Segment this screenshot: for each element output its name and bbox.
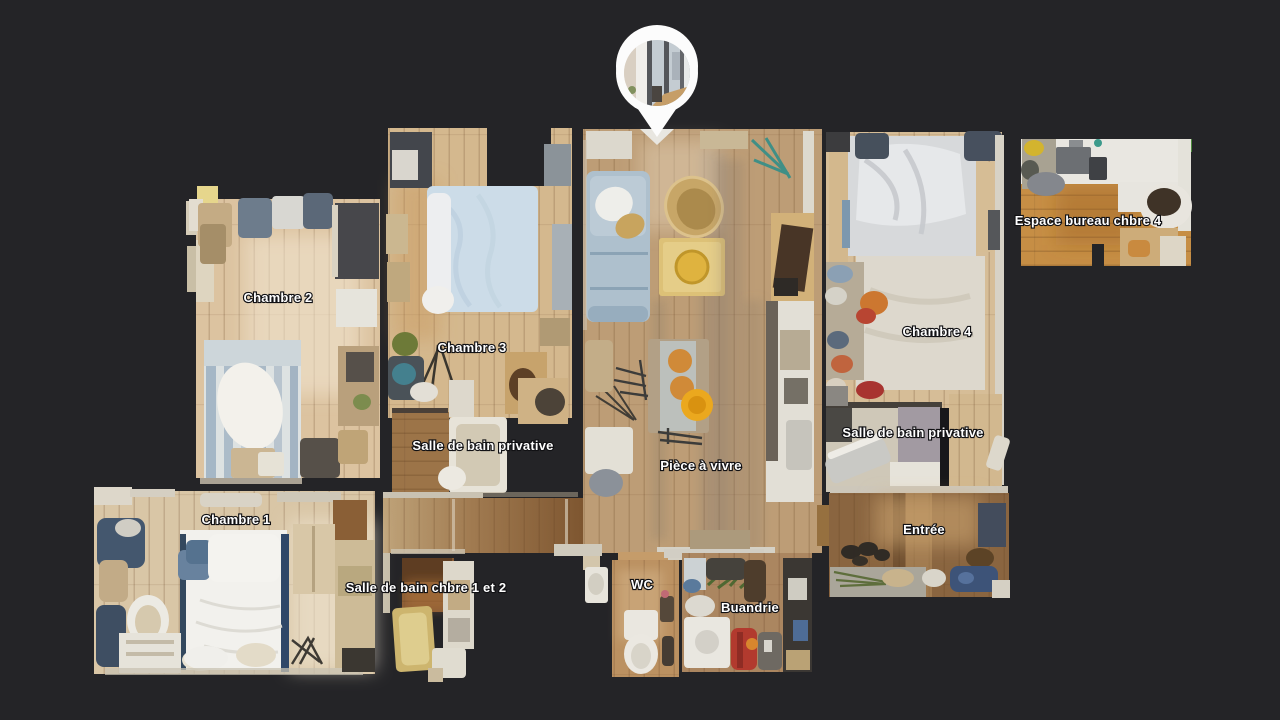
svg-text:Buandrie: Buandrie — [721, 600, 779, 615]
svg-text:Pièce à vivre: Pièce à vivre — [660, 458, 741, 473]
svg-text:Espace bureau chbre 4: Espace bureau chbre 4 — [1015, 213, 1162, 228]
svg-text:WC: WC — [631, 577, 653, 592]
svg-text:Salle de bain privative: Salle de bain privative — [412, 438, 553, 453]
svg-text:Chambre 2: Chambre 2 — [244, 290, 313, 305]
svg-text:Entrée: Entrée — [903, 522, 945, 537]
svg-text:Salle de bain chbre 1 et 2: Salle de bain chbre 1 et 2 — [346, 580, 507, 595]
svg-text:Chambre 1: Chambre 1 — [202, 512, 271, 527]
svg-text:Salle de bain privative: Salle de bain privative — [842, 425, 983, 440]
svg-text:Chambre 3: Chambre 3 — [438, 340, 507, 355]
svg-text:Chambre 4: Chambre 4 — [903, 324, 973, 339]
